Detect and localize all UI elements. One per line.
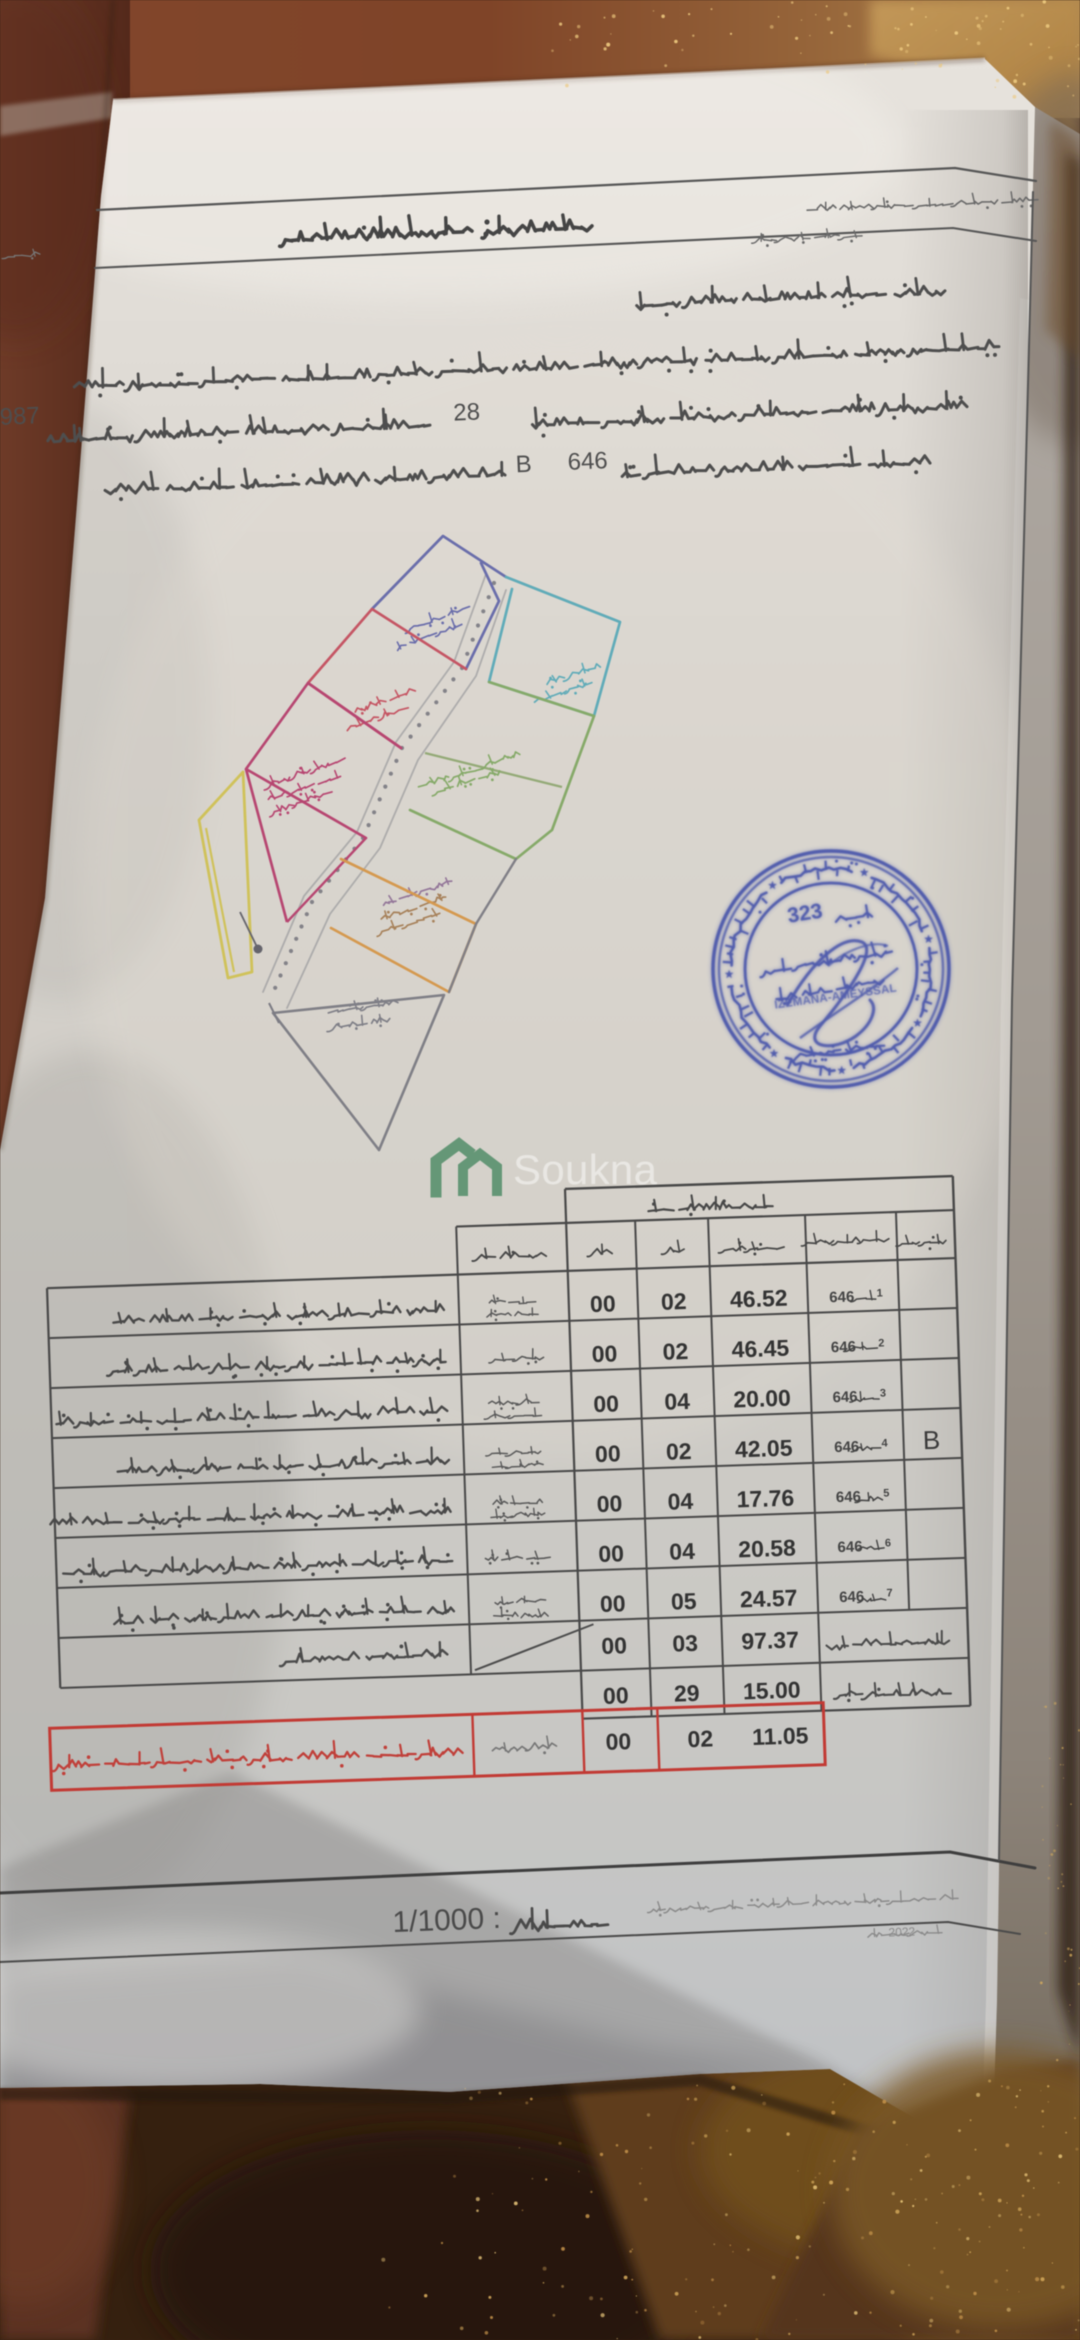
svg-text:00: 00 [593, 1390, 619, 1417]
svg-text:02: 02 [661, 1288, 687, 1315]
svg-text:15.00: 15.00 [743, 1676, 801, 1704]
svg-text:02: 02 [666, 1438, 692, 1465]
svg-text:02: 02 [687, 1725, 713, 1752]
svg-text:00: 00 [596, 1490, 622, 1517]
svg-text:04: 04 [664, 1388, 691, 1415]
svg-text:B: B [922, 1425, 940, 1456]
svg-text:646: 646 [567, 447, 608, 476]
svg-text:6: 6 [885, 1537, 892, 1549]
svg-text:02: 02 [662, 1338, 688, 1365]
svg-text:646: 646 [834, 1438, 860, 1456]
svg-text:3: 3 [880, 1387, 887, 1399]
svg-text:1/1000 :: 1/1000 : [392, 1902, 502, 1939]
svg-text:46.45: 46.45 [731, 1335, 790, 1363]
svg-text:00: 00 [595, 1440, 621, 1467]
svg-text:11.05: 11.05 [752, 1722, 809, 1750]
svg-text:42.05: 42.05 [735, 1435, 794, 1463]
svg-text:46.52: 46.52 [730, 1285, 788, 1313]
svg-text:20.58: 20.58 [738, 1534, 797, 1562]
svg-text:00: 00 [605, 1728, 631, 1755]
svg-text:00: 00 [600, 1590, 626, 1617]
svg-text:646: 646 [829, 1288, 855, 1306]
svg-text:646: 646 [831, 1338, 857, 1356]
svg-text:B: B [515, 451, 532, 479]
svg-text:00: 00 [590, 1290, 616, 1317]
svg-text:04: 04 [669, 1538, 696, 1565]
svg-text:646: 646 [839, 1588, 865, 1606]
svg-text:1: 1 [876, 1287, 883, 1299]
svg-text:646: 646 [836, 1488, 862, 1506]
svg-text:2022: 2022 [888, 1924, 916, 1939]
svg-text:05: 05 [671, 1588, 698, 1615]
svg-text:97.37: 97.37 [741, 1626, 799, 1654]
svg-text:00: 00 [598, 1540, 624, 1567]
svg-text:04: 04 [667, 1488, 694, 1515]
svg-text:987: 987 [0, 402, 40, 431]
svg-text:00: 00 [601, 1632, 627, 1659]
svg-text:28: 28 [453, 398, 481, 426]
svg-text:29: 29 [674, 1680, 700, 1707]
svg-text:00: 00 [591, 1340, 617, 1367]
svg-text:5: 5 [883, 1487, 890, 1499]
svg-text:646: 646 [832, 1388, 858, 1406]
svg-text:646: 646 [837, 1538, 863, 1556]
svg-text:24.57: 24.57 [739, 1584, 797, 1612]
svg-text:03: 03 [672, 1630, 698, 1657]
svg-text:00: 00 [603, 1682, 629, 1709]
svg-text:2: 2 [878, 1337, 885, 1349]
svg-text:7: 7 [886, 1587, 893, 1599]
svg-text:17.76: 17.76 [736, 1485, 794, 1513]
svg-text:20.00: 20.00 [733, 1385, 791, 1413]
